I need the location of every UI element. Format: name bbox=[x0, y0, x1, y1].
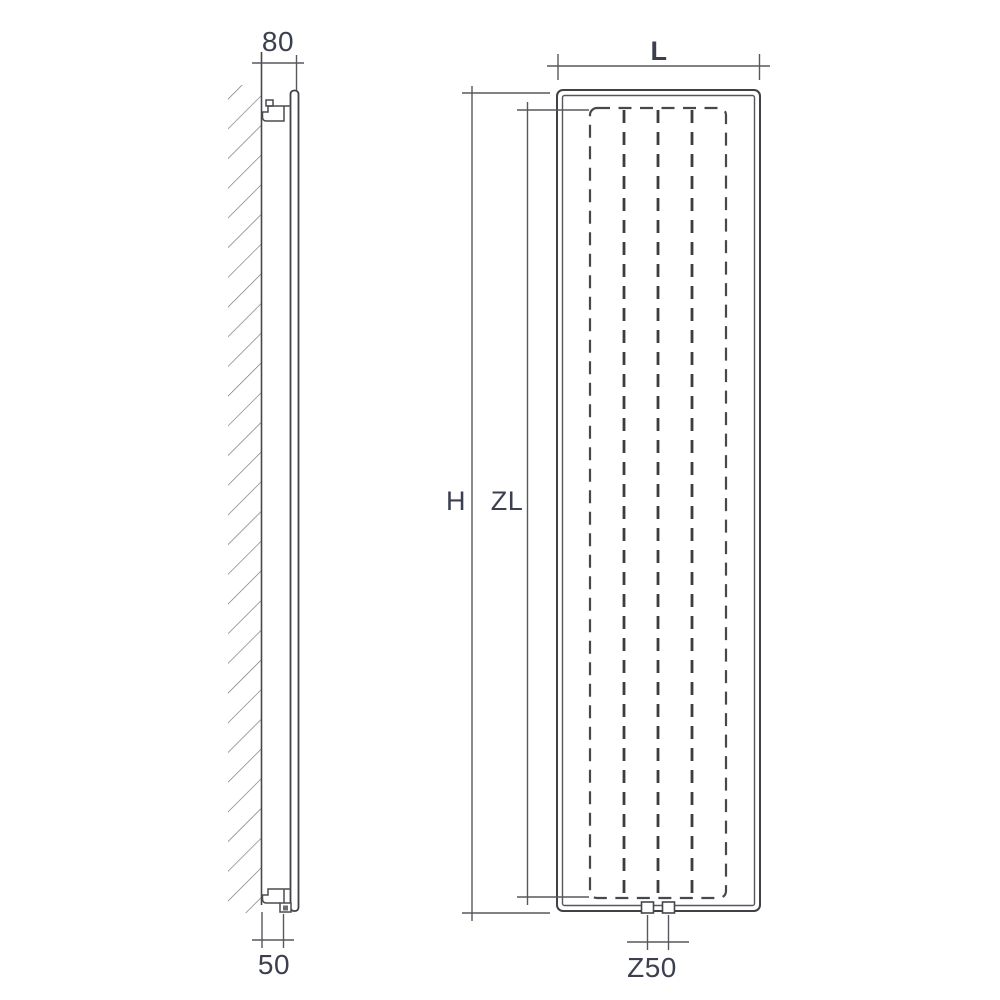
dim-height-label: H bbox=[446, 486, 466, 516]
dim-connection-label: Z50 bbox=[627, 952, 677, 983]
dim-width-label: L bbox=[651, 36, 668, 66]
bracket-hook bbox=[263, 889, 292, 903]
pipe-connector-left bbox=[642, 902, 654, 913]
bracket-foot-pad bbox=[283, 906, 288, 911]
bracket-anchor-nub bbox=[266, 100, 273, 106]
dim-element-height-label: ZL bbox=[491, 486, 524, 516]
wall-hatch bbox=[228, 85, 261, 913]
dim-wall-to-pipe-50 bbox=[252, 912, 294, 948]
dim-wall-to-pipe-label: 50 bbox=[258, 949, 290, 980]
bottom-mounting-bracket bbox=[263, 889, 292, 912]
dim-depth-80 bbox=[252, 55, 304, 90]
radiator-dimension-drawing: 80 50 L bbox=[0, 0, 1000, 1000]
drawing-svg: 80 50 L bbox=[0, 0, 1000, 1000]
dim-depth-label: 80 bbox=[262, 26, 294, 57]
side-view: 80 50 bbox=[228, 26, 304, 980]
dim-connection-Z50 bbox=[627, 915, 689, 950]
bracket-hook bbox=[263, 106, 292, 121]
radiator-outer-frame bbox=[557, 90, 760, 911]
top-mounting-bracket bbox=[263, 100, 292, 121]
pipe-connector-right bbox=[663, 902, 675, 913]
front-view: L H ZL Z50 bbox=[446, 36, 770, 983]
radiator-panel-side bbox=[291, 91, 299, 912]
